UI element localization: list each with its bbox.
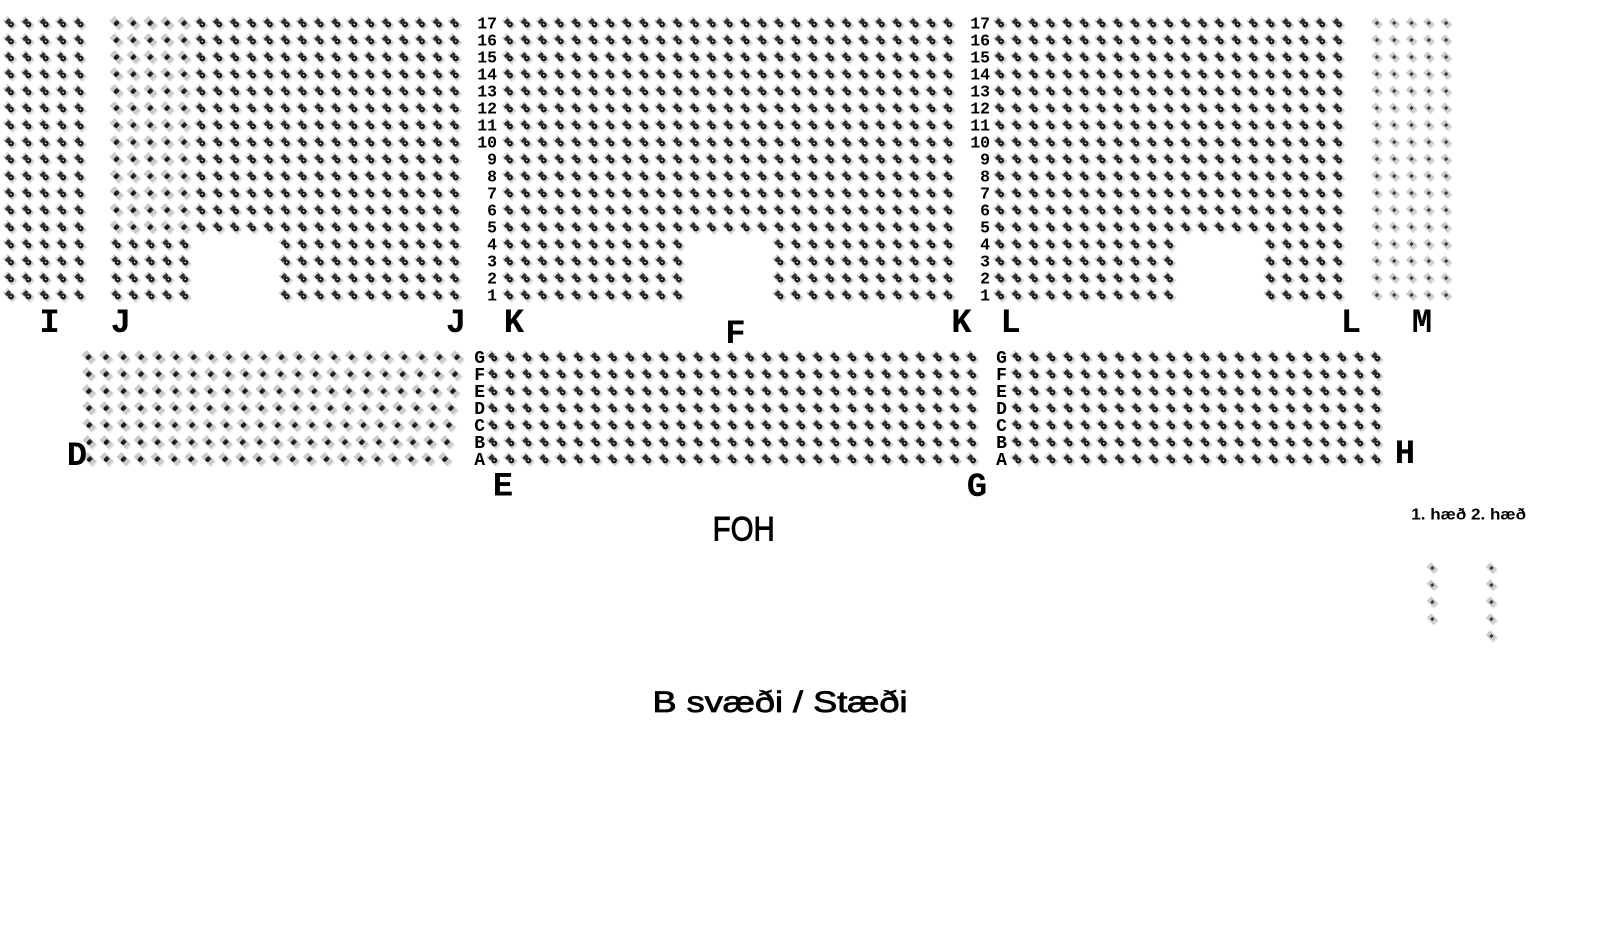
svg-text:1: 1: [487, 287, 497, 306]
svg-text:E: E: [493, 468, 513, 506]
svg-text:K: K: [504, 305, 525, 343]
svg-text:1: 1: [980, 287, 990, 306]
svg-text:L: L: [1000, 305, 1020, 343]
svg-text:H: H: [1395, 436, 1415, 474]
svg-text:L: L: [1341, 305, 1361, 343]
svg-text:D: D: [67, 438, 87, 476]
svg-text:1. hæð 2. hæð: 1. hæð 2. hæð: [1411, 507, 1526, 524]
svg-text:A: A: [474, 451, 485, 471]
svg-text:B svæði / Stæði: B svæði / Stæði: [653, 686, 908, 719]
svg-text:J: J: [446, 305, 466, 343]
svg-text:A: A: [996, 451, 1007, 471]
svg-text:M: M: [1412, 305, 1432, 343]
svg-text:J: J: [111, 305, 131, 343]
svg-text:FOH: FOH: [713, 510, 775, 548]
svg-text:G: G: [967, 469, 987, 507]
svg-text:K: K: [951, 305, 972, 343]
svg-text:F: F: [725, 316, 745, 354]
svg-text:I: I: [39, 305, 59, 343]
